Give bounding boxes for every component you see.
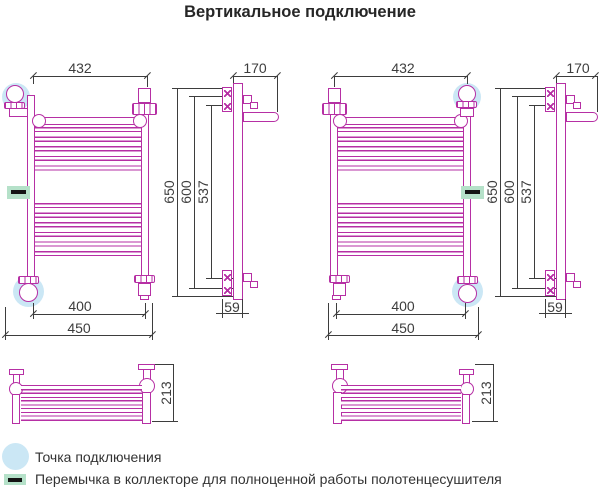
dim-line-537 bbox=[211, 105, 212, 279]
dim-ext bbox=[189, 96, 223, 97]
shelf-post bbox=[142, 392, 151, 424]
side-valve-spout bbox=[250, 281, 258, 288]
towel-rail-rungs-bottom bbox=[35, 203, 141, 257]
dim-ext bbox=[495, 296, 556, 297]
dim-ext bbox=[242, 299, 243, 318]
screw-cross-icon bbox=[547, 274, 554, 281]
dim-ext bbox=[334, 76, 335, 87]
dim-ext bbox=[277, 76, 278, 112]
dim-line bbox=[336, 314, 466, 315]
shelf-front-bar bbox=[340, 117, 462, 125]
side-valve-spout bbox=[573, 281, 581, 288]
towel-rail-rungs-bottom bbox=[338, 203, 464, 257]
dim-height-inner: 537 bbox=[196, 175, 210, 209]
dim-depth: 170 bbox=[235, 61, 275, 75]
shelf-slats bbox=[341, 385, 461, 421]
dim-ext bbox=[152, 421, 178, 422]
dim-line bbox=[33, 76, 148, 77]
valve-cap-sphere bbox=[6, 85, 24, 103]
side-valve-spout bbox=[573, 102, 581, 109]
dim-ext bbox=[222, 299, 223, 318]
shelf-side-arm bbox=[566, 112, 598, 122]
screw-cross-icon bbox=[224, 103, 231, 110]
bottom-fitting-body bbox=[458, 284, 477, 303]
dim-bottom-inner: 400 bbox=[383, 299, 423, 313]
screw-cross-icon bbox=[547, 90, 554, 97]
dim-ext bbox=[597, 76, 598, 112]
dim-ext bbox=[147, 76, 148, 87]
shelf-slats bbox=[21, 385, 142, 421]
dim-bottom-inner: 400 bbox=[60, 299, 100, 313]
dim-top-width: 432 bbox=[60, 61, 100, 75]
dim-bottom-outer: 450 bbox=[59, 321, 99, 335]
screw-cross-icon bbox=[224, 274, 231, 281]
screw-cross-icon bbox=[547, 103, 554, 110]
valve-stem bbox=[9, 108, 28, 117]
dim-line bbox=[216, 313, 249, 314]
towel-rail-rungs-top bbox=[35, 127, 141, 171]
dim-depth: 170 bbox=[558, 61, 598, 75]
dim-height-mid: 600 bbox=[502, 175, 516, 209]
bottom-fitting-body bbox=[19, 283, 38, 302]
dim-height-mid: 600 bbox=[179, 175, 193, 209]
dim-height-outer: 650 bbox=[162, 175, 176, 209]
dim-line bbox=[539, 313, 572, 314]
collector-tube-side bbox=[556, 83, 566, 300]
union-nut bbox=[132, 103, 157, 115]
shelf-post bbox=[12, 394, 20, 424]
bottom-fitting-flange bbox=[329, 275, 350, 283]
bottom-fitting-foot bbox=[332, 295, 341, 300]
dim-ext bbox=[556, 76, 557, 83]
shelf-side-arm bbox=[243, 112, 279, 122]
legend-connection-point-icon bbox=[2, 443, 29, 470]
dim-ext bbox=[565, 299, 566, 318]
screw-cross-icon bbox=[224, 90, 231, 97]
valve-flange bbox=[456, 101, 477, 108]
dim-ext bbox=[475, 364, 494, 365]
drawing-canvas: Вертикальное подключение 432 400 450 650… bbox=[0, 0, 600, 488]
dim-line bbox=[233, 76, 278, 77]
jumper-dash bbox=[11, 190, 26, 194]
dim-ext bbox=[155, 364, 174, 365]
bottom-fitting-flange bbox=[457, 276, 478, 284]
towel-rail-rungs-top bbox=[338, 127, 464, 171]
post-top-cap bbox=[328, 88, 341, 103]
dim-line bbox=[328, 335, 479, 336]
bottom-fitting-foot bbox=[140, 295, 149, 300]
dim-bottom-outer: 450 bbox=[383, 321, 423, 335]
dim-line-537 bbox=[534, 105, 535, 279]
union-nut bbox=[322, 103, 347, 115]
page-title: Вертикальное подключение bbox=[100, 3, 500, 22]
shelf-post bbox=[462, 394, 470, 424]
dim-line bbox=[5, 335, 153, 336]
dim-ext bbox=[512, 96, 546, 97]
dim-wall-offset: 59 bbox=[222, 300, 242, 314]
post-top-cap bbox=[138, 88, 151, 103]
dim-shelf-depth: 213 bbox=[479, 376, 493, 410]
dim-line bbox=[334, 76, 468, 77]
dim-ext bbox=[467, 76, 468, 84]
collector-tube-side bbox=[233, 83, 243, 300]
dim-ext bbox=[172, 88, 223, 89]
dim-wall-offset: 59 bbox=[545, 300, 565, 314]
dim-line bbox=[33, 314, 146, 315]
legend-connection-point-label: Точка подключения bbox=[35, 449, 161, 465]
valve-stem bbox=[460, 108, 474, 117]
screw-cross-icon bbox=[224, 287, 231, 294]
legend-jumper-dash-icon bbox=[8, 478, 22, 482]
screw-cross-icon bbox=[547, 287, 554, 294]
dim-top-width: 432 bbox=[383, 61, 423, 75]
dim-shelf-depth: 213 bbox=[159, 376, 173, 410]
dim-height-outer: 650 bbox=[485, 175, 499, 209]
jumper-dash bbox=[465, 190, 480, 194]
dim-ext bbox=[233, 76, 234, 83]
side-valve-spout bbox=[250, 102, 258, 109]
dim-ext bbox=[472, 421, 498, 422]
dim-ext bbox=[172, 296, 233, 297]
shelf-hinge-right bbox=[133, 114, 147, 128]
dim-ext bbox=[33, 76, 34, 84]
bottom-fitting-flange bbox=[134, 275, 155, 283]
shelf-front-bar bbox=[39, 117, 141, 125]
dim-height-inner: 537 bbox=[519, 175, 533, 209]
shelf-hinge-left bbox=[333, 114, 347, 128]
dim-ext bbox=[545, 299, 546, 318]
shelf-hinge-left bbox=[32, 114, 46, 128]
legend-jumper-label: Перемычка в коллекторе для полноценной р… bbox=[35, 471, 502, 487]
dim-ext bbox=[495, 88, 546, 89]
